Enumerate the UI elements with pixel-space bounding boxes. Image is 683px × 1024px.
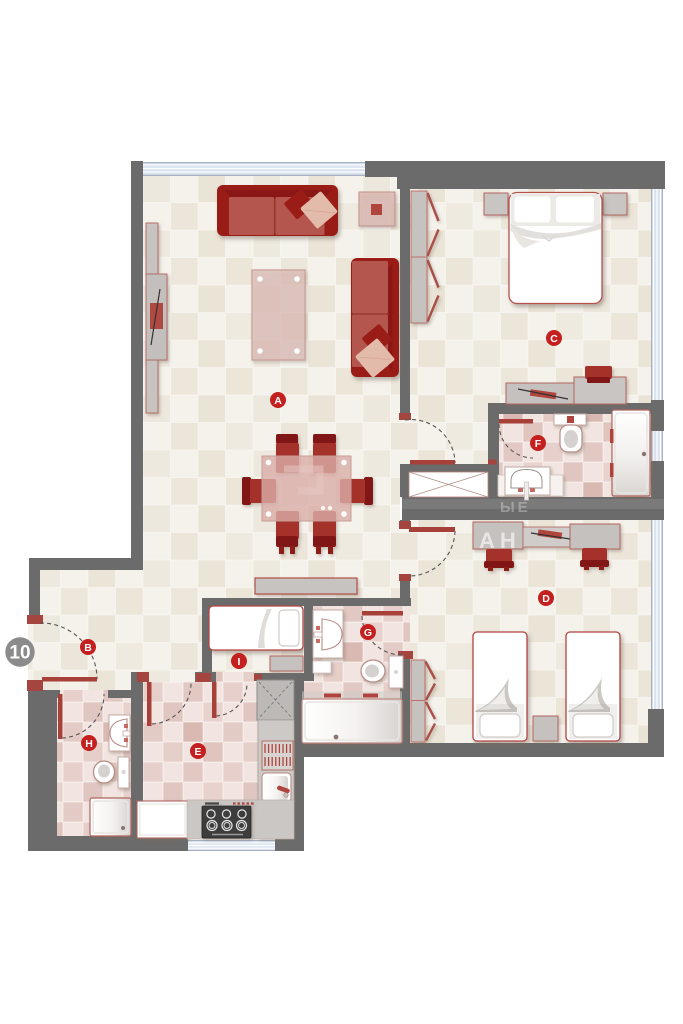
svg-text:АН: АН [479, 528, 521, 553]
svg-text:G: G [364, 627, 372, 639]
svg-text:H: H [85, 738, 93, 750]
svg-text:B: B [84, 642, 92, 654]
svg-text:C: C [550, 333, 558, 345]
svg-text:E: E [194, 746, 201, 758]
svg-text:I: I [238, 656, 241, 668]
svg-text:D: D [542, 593, 550, 605]
svg-text:F: F [535, 438, 542, 450]
svg-text:ЫЕ: ЫЕ [500, 499, 531, 516]
svg-text:10: 10 [9, 643, 30, 664]
svg-text:A: A [274, 395, 282, 407]
